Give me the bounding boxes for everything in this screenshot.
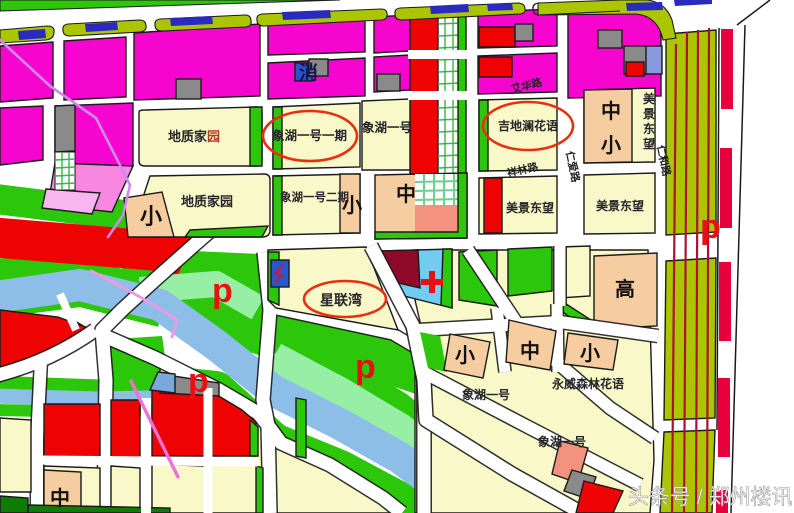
- svg-text:中: 中: [396, 182, 416, 206]
- svg-text:星联湾: 星联湾: [320, 292, 362, 309]
- svg-text:小: 小: [455, 344, 475, 367]
- svg-text:p: p: [188, 362, 209, 400]
- svg-text:高: 高: [615, 277, 635, 301]
- svg-text:美: 美: [643, 91, 656, 106]
- svg-text:中: 中: [50, 486, 70, 510]
- svg-text:消: 消: [299, 61, 318, 84]
- svg-text:园: 园: [207, 129, 220, 144]
- svg-text:地质家园: 地质家园: [181, 194, 233, 209]
- svg-text:美景东望: 美景东望: [596, 198, 644, 213]
- svg-text:景: 景: [643, 107, 655, 121]
- svg-text:p: p: [355, 348, 376, 386]
- svg-text:小: 小: [601, 134, 621, 157]
- svg-text:头条号 / 郑州楼讯: 头条号 / 郑州楼讯: [628, 486, 793, 509]
- svg-text:中: 中: [601, 99, 621, 123]
- svg-text:象湖一号: 象湖一号: [538, 434, 586, 449]
- svg-text:小: 小: [342, 194, 362, 217]
- svg-text:地质家: 地质家: [168, 129, 208, 144]
- svg-text:象湖一号: 象湖一号: [462, 387, 510, 402]
- svg-text:小: 小: [580, 342, 600, 365]
- svg-text:象湖一号: 象湖一号: [362, 120, 412, 135]
- svg-text:东: 东: [643, 121, 655, 136]
- svg-text:望: 望: [643, 136, 655, 151]
- svg-text:美景东望: 美景东望: [506, 200, 554, 215]
- svg-text:象湖一号二期: 象湖一号二期: [280, 190, 349, 204]
- svg-text:p: p: [700, 208, 721, 246]
- svg-text:小: 小: [140, 204, 162, 229]
- svg-text:吉地澜花语: 吉地澜花语: [498, 118, 558, 133]
- svg-text:象湖一号一期: 象湖一号一期: [272, 128, 347, 143]
- svg-text:永威森林花语: 永威森林花语: [551, 376, 624, 391]
- svg-text:中: 中: [520, 339, 540, 363]
- svg-text:p: p: [212, 272, 233, 310]
